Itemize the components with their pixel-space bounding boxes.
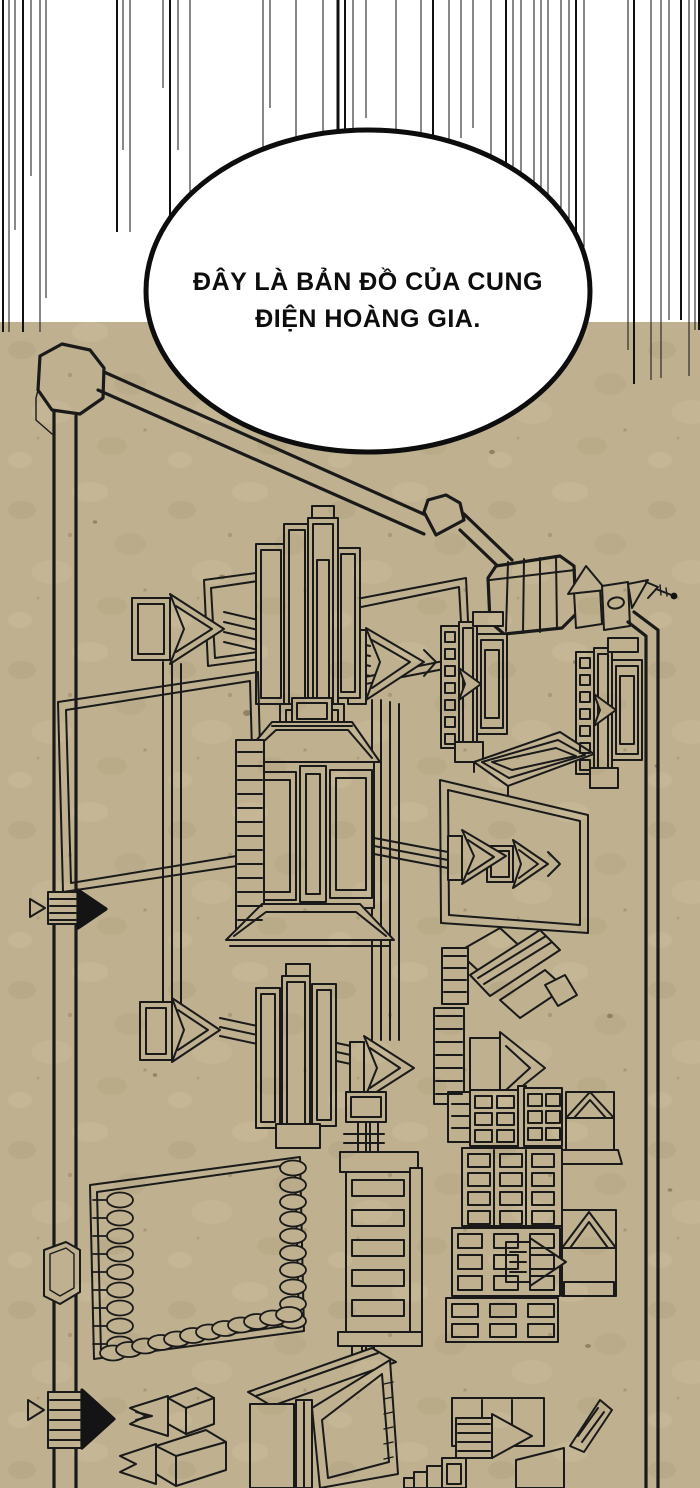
wall-post-mid <box>44 1242 80 1304</box>
corner-post-octagon <box>38 344 104 414</box>
speech-text-line2: ĐIỆN HOÀNG GIA. <box>255 303 481 333</box>
gable-tower-2 <box>562 1210 616 1296</box>
speech-text-line1: ĐÂY LÀ BẢN ĐỒ CỦA CUNG <box>193 266 543 296</box>
gable-tower-1 <box>558 1092 622 1164</box>
webtoon-panel: ĐÂY LÀ BẢN ĐỒ CỦA CUNG ĐIỆN HOÀNG GIA. <box>0 0 700 1488</box>
royal-palace-map-illustration: ĐÂY LÀ BẢN ĐỒ CỦA CUNG ĐIỆN HOÀNG GIA. <box>0 0 700 1488</box>
